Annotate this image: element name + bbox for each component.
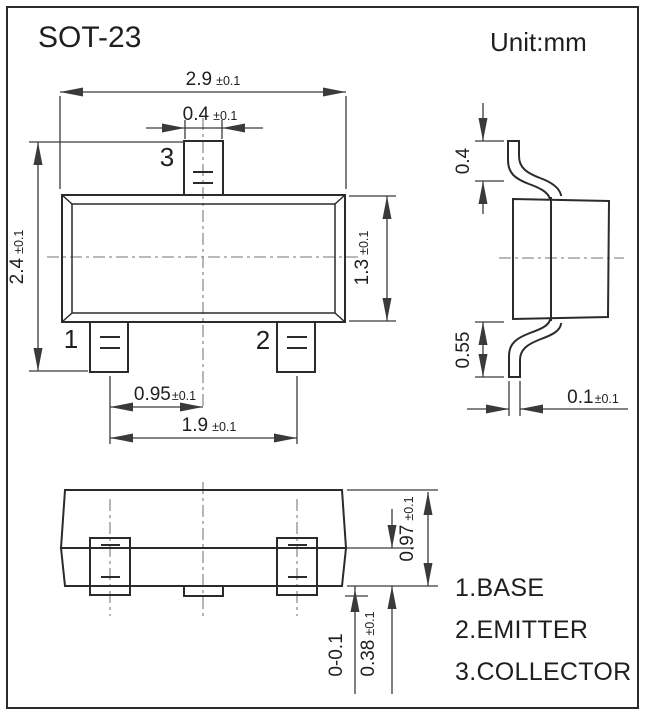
dim-bottom-height-text: 0.97±0.1 bbox=[397, 496, 418, 561]
arrow-up bbox=[383, 196, 392, 219]
dim-pad-protrusion-text: 0-0.1 bbox=[326, 633, 347, 676]
dim-lead-bottom-height: 0.55 bbox=[453, 322, 504, 377]
arrow-right bbox=[162, 124, 185, 133]
chamfer-top-right bbox=[335, 195, 345, 204]
arrow-left bbox=[110, 434, 133, 443]
dim-pad-protrusion: 0-0.1 bbox=[326, 586, 360, 694]
dim-body-height-text: 2.4±0.1 bbox=[7, 230, 28, 285]
dim-lead-pitch-text: 0.95±0.1 bbox=[134, 384, 196, 405]
side-view: 0.4 0.55 0.1±0.1 bbox=[453, 103, 628, 416]
arrow-left bbox=[222, 124, 245, 133]
dim-body-width-text: 2.9±0.1 bbox=[186, 69, 241, 90]
arrow-down bbox=[388, 525, 397, 548]
front-view: 3 1 2 2.9±0.1 0.4±0.1 bbox=[7, 69, 396, 444]
arrow-left bbox=[520, 405, 543, 414]
legend-item-base: 1.BASE bbox=[455, 574, 544, 602]
arrow-up bbox=[388, 586, 397, 609]
arrow-down bbox=[479, 118, 488, 141]
dim-lead-width-text: 0.4±0.1 bbox=[183, 104, 238, 125]
side-body-outline bbox=[513, 199, 609, 319]
arrow-right bbox=[323, 88, 346, 97]
arrow-down bbox=[383, 298, 392, 321]
dim-lead-top-height: 0.4 bbox=[453, 103, 504, 214]
dim-body-depth-text: 1.3±0.1 bbox=[352, 231, 373, 286]
page-border bbox=[7, 7, 638, 708]
side-lead-top bbox=[508, 141, 561, 199]
bottom-view: 0-0.1 0.38±0.1 0.97±0.1 bbox=[61, 482, 438, 694]
chamfer-bottom-left bbox=[62, 313, 72, 322]
dim-pad-length-text: 0.38±0.1 bbox=[358, 611, 379, 676]
chamfer-bottom-right bbox=[335, 313, 345, 322]
pin1-label: 1 bbox=[64, 324, 78, 354]
dim-lead-span-text: 1.9±0.1 bbox=[182, 415, 237, 436]
pin-legend: 1.BASE 2.EMITTER 3.COLLECTOR bbox=[455, 574, 632, 686]
dim-lead-thickness: 0.1±0.1 bbox=[467, 381, 628, 416]
legend-item-collector: 3.COLLECTOR bbox=[455, 658, 632, 686]
arrow-right bbox=[274, 434, 297, 443]
side-lead-bottom bbox=[509, 320, 561, 377]
arrow-left bbox=[60, 88, 83, 97]
arrow-up bbox=[351, 589, 360, 612]
sot23-outline-drawing: SOT-23 Unit:mm 3 1 2 bbox=[0, 0, 645, 715]
dim-pad-length: 0.38±0.1 bbox=[358, 509, 397, 694]
dim-body-depth: 1.3±0.1 bbox=[349, 196, 396, 321]
arrow-right bbox=[486, 405, 509, 414]
arrow-up bbox=[479, 181, 488, 204]
pin3-label: 3 bbox=[160, 142, 174, 172]
arrow-down bbox=[424, 563, 433, 586]
chamfer-top-left bbox=[62, 195, 72, 204]
legend-item-emitter: 2.EMITTER bbox=[455, 616, 588, 644]
dim-lead-width: 0.4±0.1 bbox=[146, 104, 263, 139]
unit-label: Unit:mm bbox=[490, 27, 587, 57]
arrow-right bbox=[180, 403, 203, 412]
arrow-down bbox=[479, 354, 488, 377]
arrow-down bbox=[34, 348, 43, 371]
bottom-pad-center-marks bbox=[102, 545, 306, 577]
arrow-up bbox=[34, 142, 43, 165]
arrow-up bbox=[424, 492, 433, 515]
dim-lead-bottom-text: 0.55 bbox=[453, 332, 474, 369]
dim-lead-top-text: 0.4 bbox=[453, 147, 474, 174]
pin2-label: 2 bbox=[256, 325, 270, 355]
drawing-title: SOT-23 bbox=[38, 21, 141, 54]
arrow-up bbox=[479, 322, 488, 345]
dim-lead-thickness-text: 0.1±0.1 bbox=[567, 387, 619, 408]
dim-bottom-height: 0.97±0.1 bbox=[397, 492, 433, 586]
arrow-left bbox=[110, 403, 133, 412]
package-drawing-page: SOT-23 Unit:mm 3 1 2 bbox=[0, 0, 645, 715]
